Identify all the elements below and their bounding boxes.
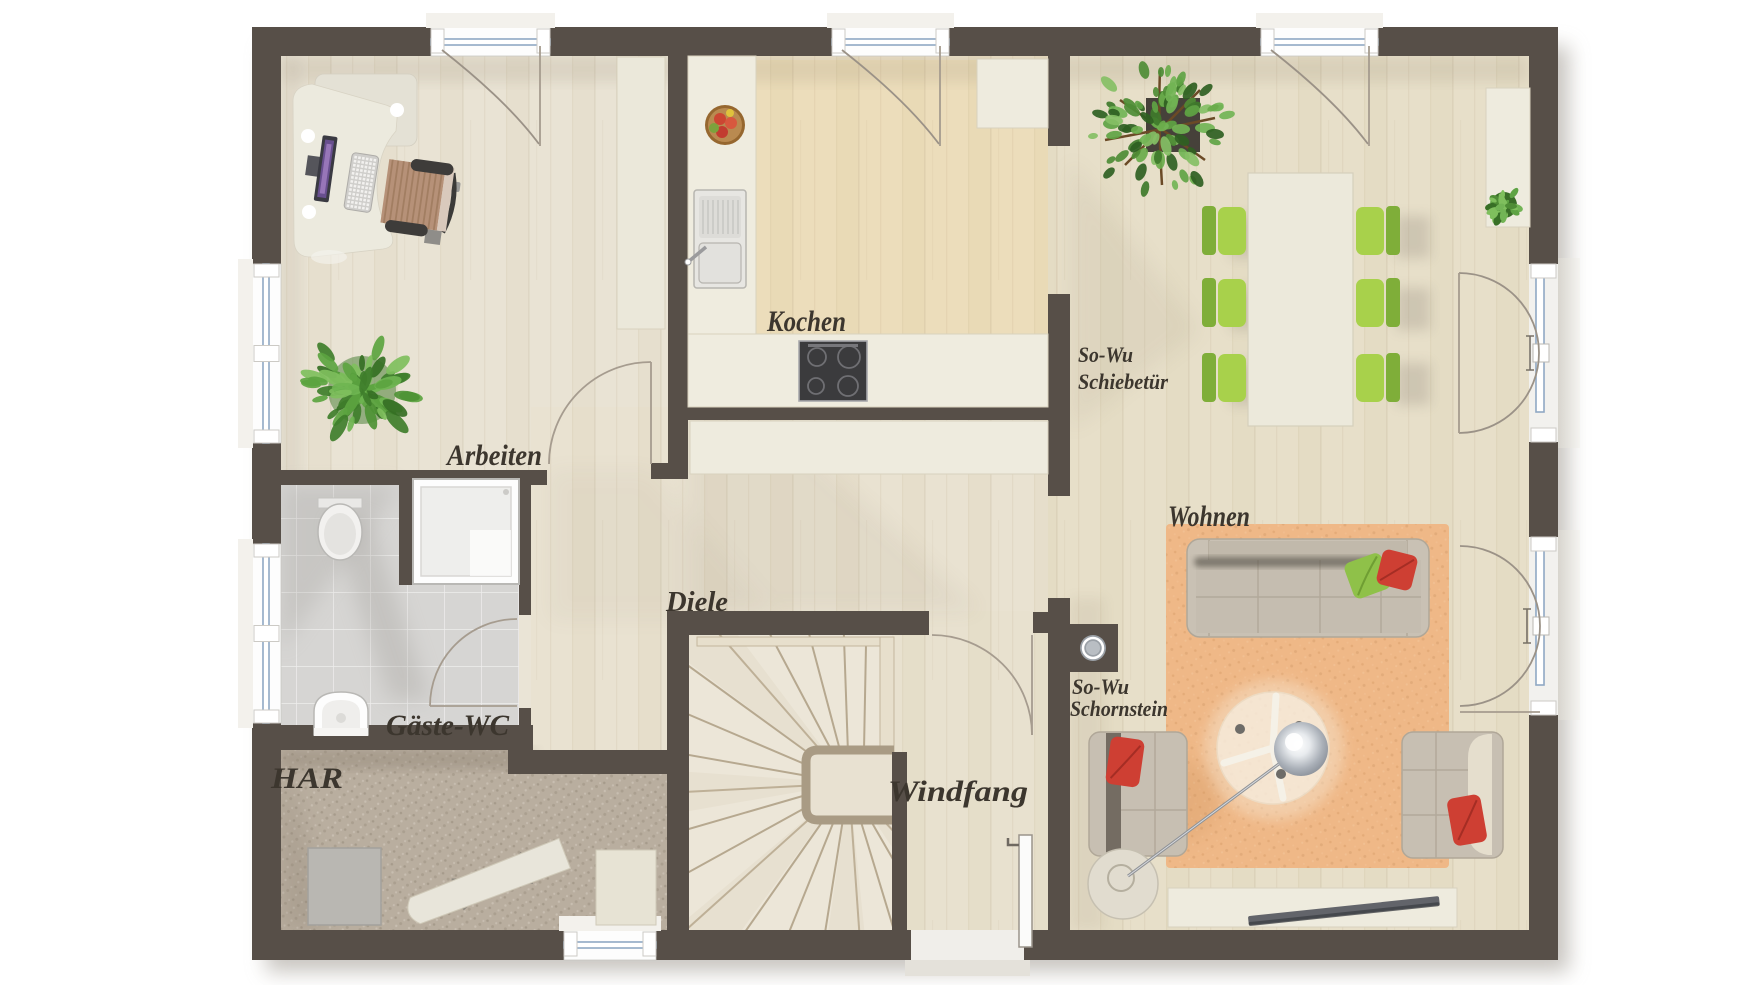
- svg-text:Schornstein: Schornstein: [1070, 696, 1168, 721]
- svg-text:Gäste-WC: Gäste-WC: [386, 709, 510, 742]
- svg-text:Kochen: Kochen: [766, 305, 846, 338]
- svg-text:So-Wu: So-Wu: [1078, 342, 1133, 367]
- svg-text:Arbeiten: Arbeiten: [445, 439, 542, 472]
- svg-text:Schiebetür: Schiebetür: [1078, 369, 1168, 394]
- svg-text:HAR: HAR: [270, 762, 343, 795]
- svg-text:Wohnen: Wohnen: [1168, 500, 1250, 533]
- svg-text:Windfang: Windfang: [888, 775, 1028, 808]
- svg-text:Diele: Diele: [665, 587, 728, 618]
